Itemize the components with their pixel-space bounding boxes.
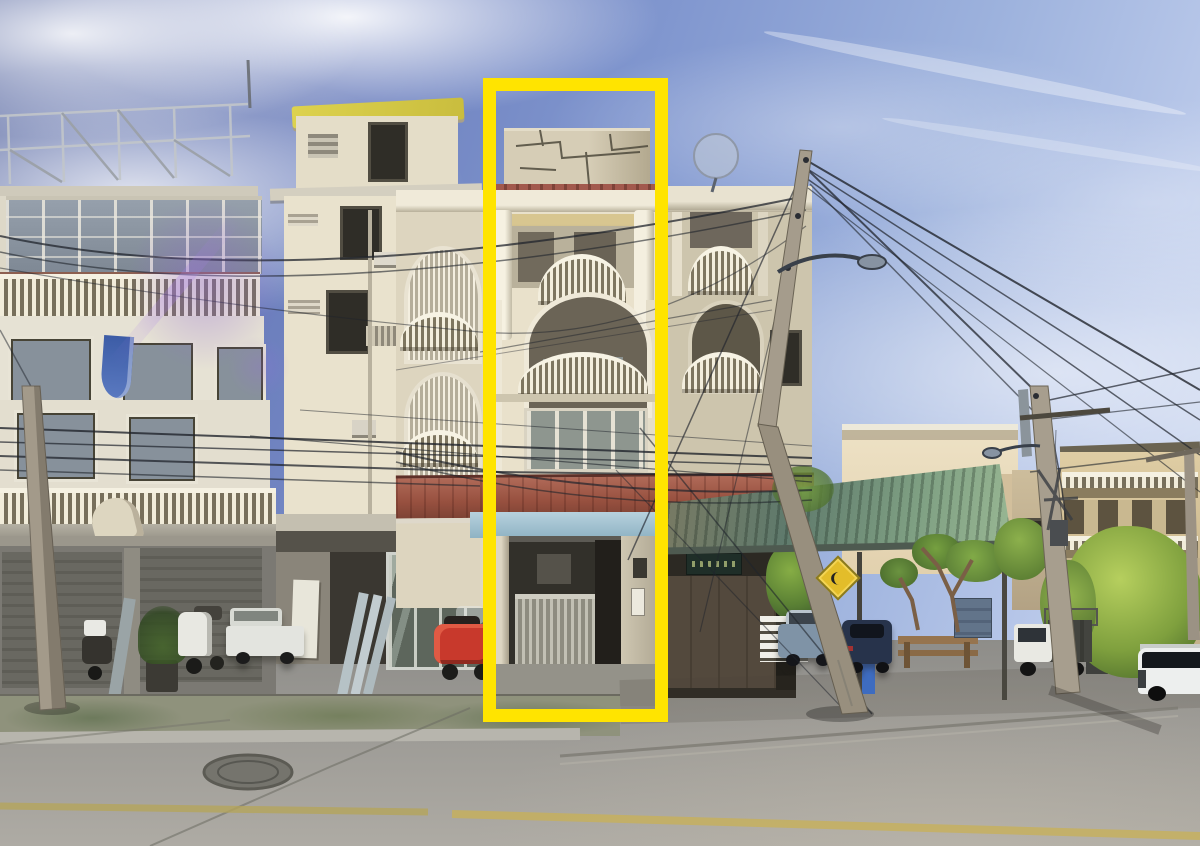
highlight-annotation-rectangle: [483, 78, 668, 722]
sign-curve-symbol: [831, 572, 847, 585]
tree-trunks: [900, 548, 972, 632]
lens-flare-blob: [228, 336, 290, 398]
satellite-dish: [694, 134, 738, 192]
street-photo-scene: [0, 0, 1200, 846]
rooftop-steel-frame: [0, 60, 250, 184]
